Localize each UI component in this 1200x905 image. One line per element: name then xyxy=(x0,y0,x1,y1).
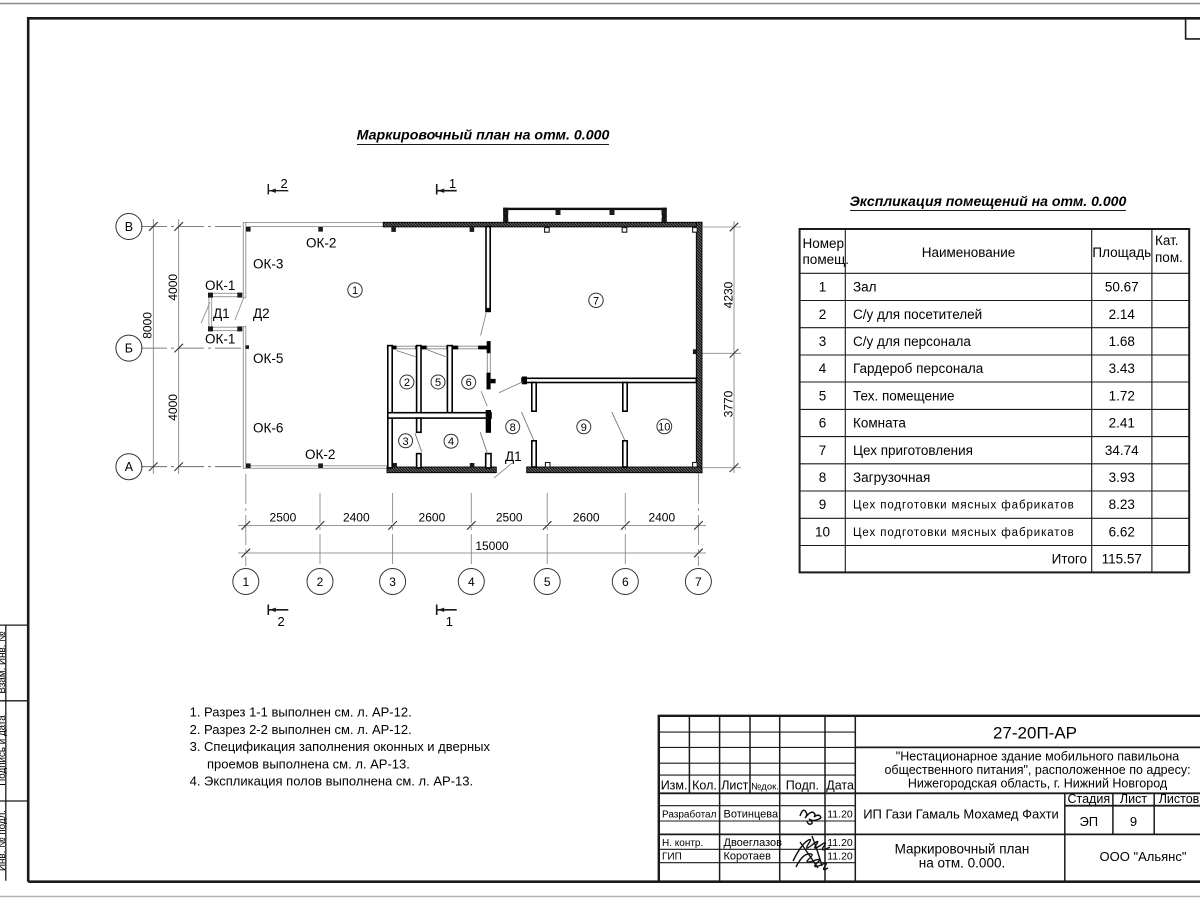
svg-text:6: 6 xyxy=(466,377,472,389)
svg-text:ОК-2: ОК-2 xyxy=(306,236,336,251)
svg-text:2500: 2500 xyxy=(496,510,523,524)
svg-text:Нижегородская область, г. Нижн: Нижегородская область, г. Нижний Новгоро… xyxy=(908,777,1168,791)
svg-text:6: 6 xyxy=(819,416,827,431)
svg-text:2600: 2600 xyxy=(573,510,600,524)
svg-text:1.68: 1.68 xyxy=(1109,334,1135,349)
svg-text:9: 9 xyxy=(1130,814,1137,829)
svg-text:11.20: 11.20 xyxy=(827,837,853,849)
svg-text:ОК-1: ОК-1 xyxy=(205,278,235,293)
svg-text:3: 3 xyxy=(389,575,396,589)
svg-text:1: 1 xyxy=(449,176,456,191)
svg-text:5: 5 xyxy=(819,388,827,403)
svg-text:4. Экспликация полов выполнена: 4. Экспликация полов выполнена см. л. АР… xyxy=(190,774,474,789)
svg-text:3.43: 3.43 xyxy=(1109,361,1135,376)
svg-text:Стадия: Стадия xyxy=(1067,792,1110,806)
svg-text:1: 1 xyxy=(446,614,453,629)
svg-text:2: 2 xyxy=(317,575,324,589)
svg-text:3770: 3770 xyxy=(722,390,736,417)
svg-text:7: 7 xyxy=(593,295,599,307)
svg-text:4000: 4000 xyxy=(166,394,180,421)
svg-text:1.72: 1.72 xyxy=(1109,388,1135,403)
svg-text:ОК-3: ОК-3 xyxy=(253,257,283,272)
svg-text:2: 2 xyxy=(819,307,827,322)
svg-text:2: 2 xyxy=(278,614,285,629)
svg-text:2: 2 xyxy=(404,377,410,389)
svg-text:Коротаев: Коротаев xyxy=(724,851,772,863)
svg-text:2600: 2600 xyxy=(419,510,446,524)
svg-text:Д1: Д1 xyxy=(505,449,522,464)
svg-text:№док.: №док. xyxy=(751,782,779,793)
svg-text:50.67: 50.67 xyxy=(1105,280,1139,295)
svg-text:Подпись и дата: Подпись и дата xyxy=(0,715,8,786)
svg-text:Подп.: Подп. xyxy=(786,779,819,793)
svg-text:ОК-5: ОК-5 xyxy=(253,351,283,366)
svg-text:8: 8 xyxy=(510,422,516,434)
svg-text:помещ.: помещ. xyxy=(803,252,849,267)
svg-text:Взам. Инв. №: Взам. Инв. № xyxy=(0,631,8,693)
svg-text:Маркировочный план: Маркировочный план xyxy=(895,842,1030,857)
svg-text:Кол.: Кол. xyxy=(692,779,717,793)
svg-text:8: 8 xyxy=(819,470,827,485)
svg-text:Двоеглазов: Двоеглазов xyxy=(724,837,783,849)
svg-text:4230: 4230 xyxy=(722,281,736,308)
svg-text:ГИП: ГИП xyxy=(662,852,682,863)
svg-text:ОК-1: ОК-1 xyxy=(205,332,235,347)
svg-text:общественного питания", распол: общественного питания", расположенное по… xyxy=(884,763,1190,777)
svg-text:10: 10 xyxy=(658,421,670,433)
svg-text:2400: 2400 xyxy=(648,510,675,524)
svg-text:9: 9 xyxy=(581,422,587,434)
svg-text:2: 2 xyxy=(281,176,288,191)
svg-text:115.57: 115.57 xyxy=(1102,552,1142,567)
svg-text:7: 7 xyxy=(819,443,827,458)
svg-text:1: 1 xyxy=(242,575,249,589)
svg-text:Загрузочная: Загрузочная xyxy=(853,470,930,485)
svg-text:Д1: Д1 xyxy=(213,306,230,321)
svg-text:пом.: пом. xyxy=(1155,250,1183,265)
svg-text:Б: Б xyxy=(125,342,133,356)
svg-text:Гардероб персонала: Гардероб персонала xyxy=(853,361,984,376)
svg-text:ЭП: ЭП xyxy=(1079,814,1098,829)
svg-text:Д2: Д2 xyxy=(253,306,270,321)
svg-text:2.14: 2.14 xyxy=(1109,307,1136,322)
svg-text:4: 4 xyxy=(448,436,454,448)
svg-text:4: 4 xyxy=(468,575,475,589)
svg-text:1: 1 xyxy=(352,285,358,297)
svg-text:11.20: 11.20 xyxy=(827,809,853,821)
svg-text:на отм. 0.000.: на отм. 0.000. xyxy=(919,856,1005,871)
svg-text:Н. контр.: Н. контр. xyxy=(662,838,703,849)
svg-text:2. Разрез 2-2 выполнен см. л.: 2. Разрез 2-2 выполнен см. л. АР-12. xyxy=(190,722,412,737)
svg-text:27-20П-АР: 27-20П-АР xyxy=(993,724,1077,743)
svg-text:3: 3 xyxy=(403,436,409,448)
svg-text:8000: 8000 xyxy=(141,312,155,339)
svg-text:4000: 4000 xyxy=(166,274,180,301)
svg-text:Лист: Лист xyxy=(1120,792,1147,806)
svg-text:Площадь: Площадь xyxy=(1092,245,1151,260)
svg-text:10: 10 xyxy=(815,524,830,539)
svg-text:Номер: Номер xyxy=(803,236,845,251)
svg-text:Тех. помещение: Тех. помещение xyxy=(853,388,955,403)
svg-text:ОК-6: ОК-6 xyxy=(253,421,283,436)
svg-text:2400: 2400 xyxy=(343,510,370,524)
svg-text:1. Разрез 1-1 выполнен см. л.: 1. Разрез 1-1 выполнен см. л. АР-12. xyxy=(190,705,412,720)
svg-text:С/у для посетителей: С/у для посетителей xyxy=(853,307,982,322)
svg-text:5: 5 xyxy=(435,377,441,389)
svg-text:Наименование: Наименование xyxy=(922,245,1016,260)
svg-text:Итого: Итого xyxy=(1052,552,1087,567)
svg-text:Инв. № подл.: Инв. № подл. xyxy=(0,810,8,871)
svg-text:Цех подготовки мясных фабрикат: Цех подготовки мясных фабрикатов xyxy=(853,500,1075,512)
svg-text:8.23: 8.23 xyxy=(1109,497,1135,512)
svg-text:Маркировочный план на отм. 0.0: Маркировочный план на отм. 0.000 xyxy=(357,128,610,144)
svg-text:Цех подготовки мясных фабрикат: Цех подготовки мясных фабрикатов xyxy=(853,527,1075,539)
svg-text:11.20: 11.20 xyxy=(827,851,853,863)
svg-text:5: 5 xyxy=(544,575,551,589)
svg-text:Кат.: Кат. xyxy=(1155,233,1179,248)
svg-text:34.74: 34.74 xyxy=(1105,443,1139,458)
svg-text:7: 7 xyxy=(695,575,702,589)
svg-text:2500: 2500 xyxy=(270,510,297,524)
svg-text:В: В xyxy=(125,220,133,234)
svg-text:ИП Гази Гамаль Мохамед Фахти: ИП Гази Гамаль Мохамед Фахти xyxy=(863,807,1059,822)
svg-text:проемов выполнена см. л. АР-13: проемов выполнена см. л. АР-13. xyxy=(207,756,410,771)
svg-text:6.62: 6.62 xyxy=(1109,524,1135,539)
svg-text:Дата: Дата xyxy=(826,779,854,793)
svg-text:2.41: 2.41 xyxy=(1109,416,1135,431)
svg-text:Листов: Листов xyxy=(1159,792,1200,806)
svg-text:Экспликация помещений на отм.: Экспликация помещений на отм. 0.000 xyxy=(850,193,1127,209)
svg-text:С/у для персонала: С/у для персонала xyxy=(853,334,971,349)
svg-text:"Нестационарное здание мобильн: "Нестационарное здание мобильного павиль… xyxy=(896,750,1179,764)
svg-text:Лист: Лист xyxy=(721,779,748,793)
svg-text:3: 3 xyxy=(819,334,827,349)
svg-text:15000: 15000 xyxy=(475,539,509,553)
svg-text:9: 9 xyxy=(819,497,827,512)
svg-text:Разработал: Разработал xyxy=(662,809,717,821)
svg-text:3. Спецификация заполнения око: 3. Спецификация заполнения оконных и две… xyxy=(190,739,491,754)
svg-text:Изм.: Изм. xyxy=(661,779,688,793)
svg-text:3.93: 3.93 xyxy=(1109,470,1135,485)
svg-text:ООО "Альянс": ООО "Альянс" xyxy=(1100,849,1187,864)
svg-text:Цех приготовления: Цех приготовления xyxy=(853,443,973,458)
svg-text:Комната: Комната xyxy=(853,416,906,431)
svg-text:1: 1 xyxy=(819,280,827,295)
svg-text:6: 6 xyxy=(622,575,629,589)
svg-text:Зал: Зал xyxy=(853,280,877,295)
svg-text:Вотинцева: Вотинцева xyxy=(724,809,779,821)
svg-text:А: А xyxy=(125,460,134,474)
svg-text:4: 4 xyxy=(819,361,827,376)
svg-text:ОК-2: ОК-2 xyxy=(305,447,335,462)
